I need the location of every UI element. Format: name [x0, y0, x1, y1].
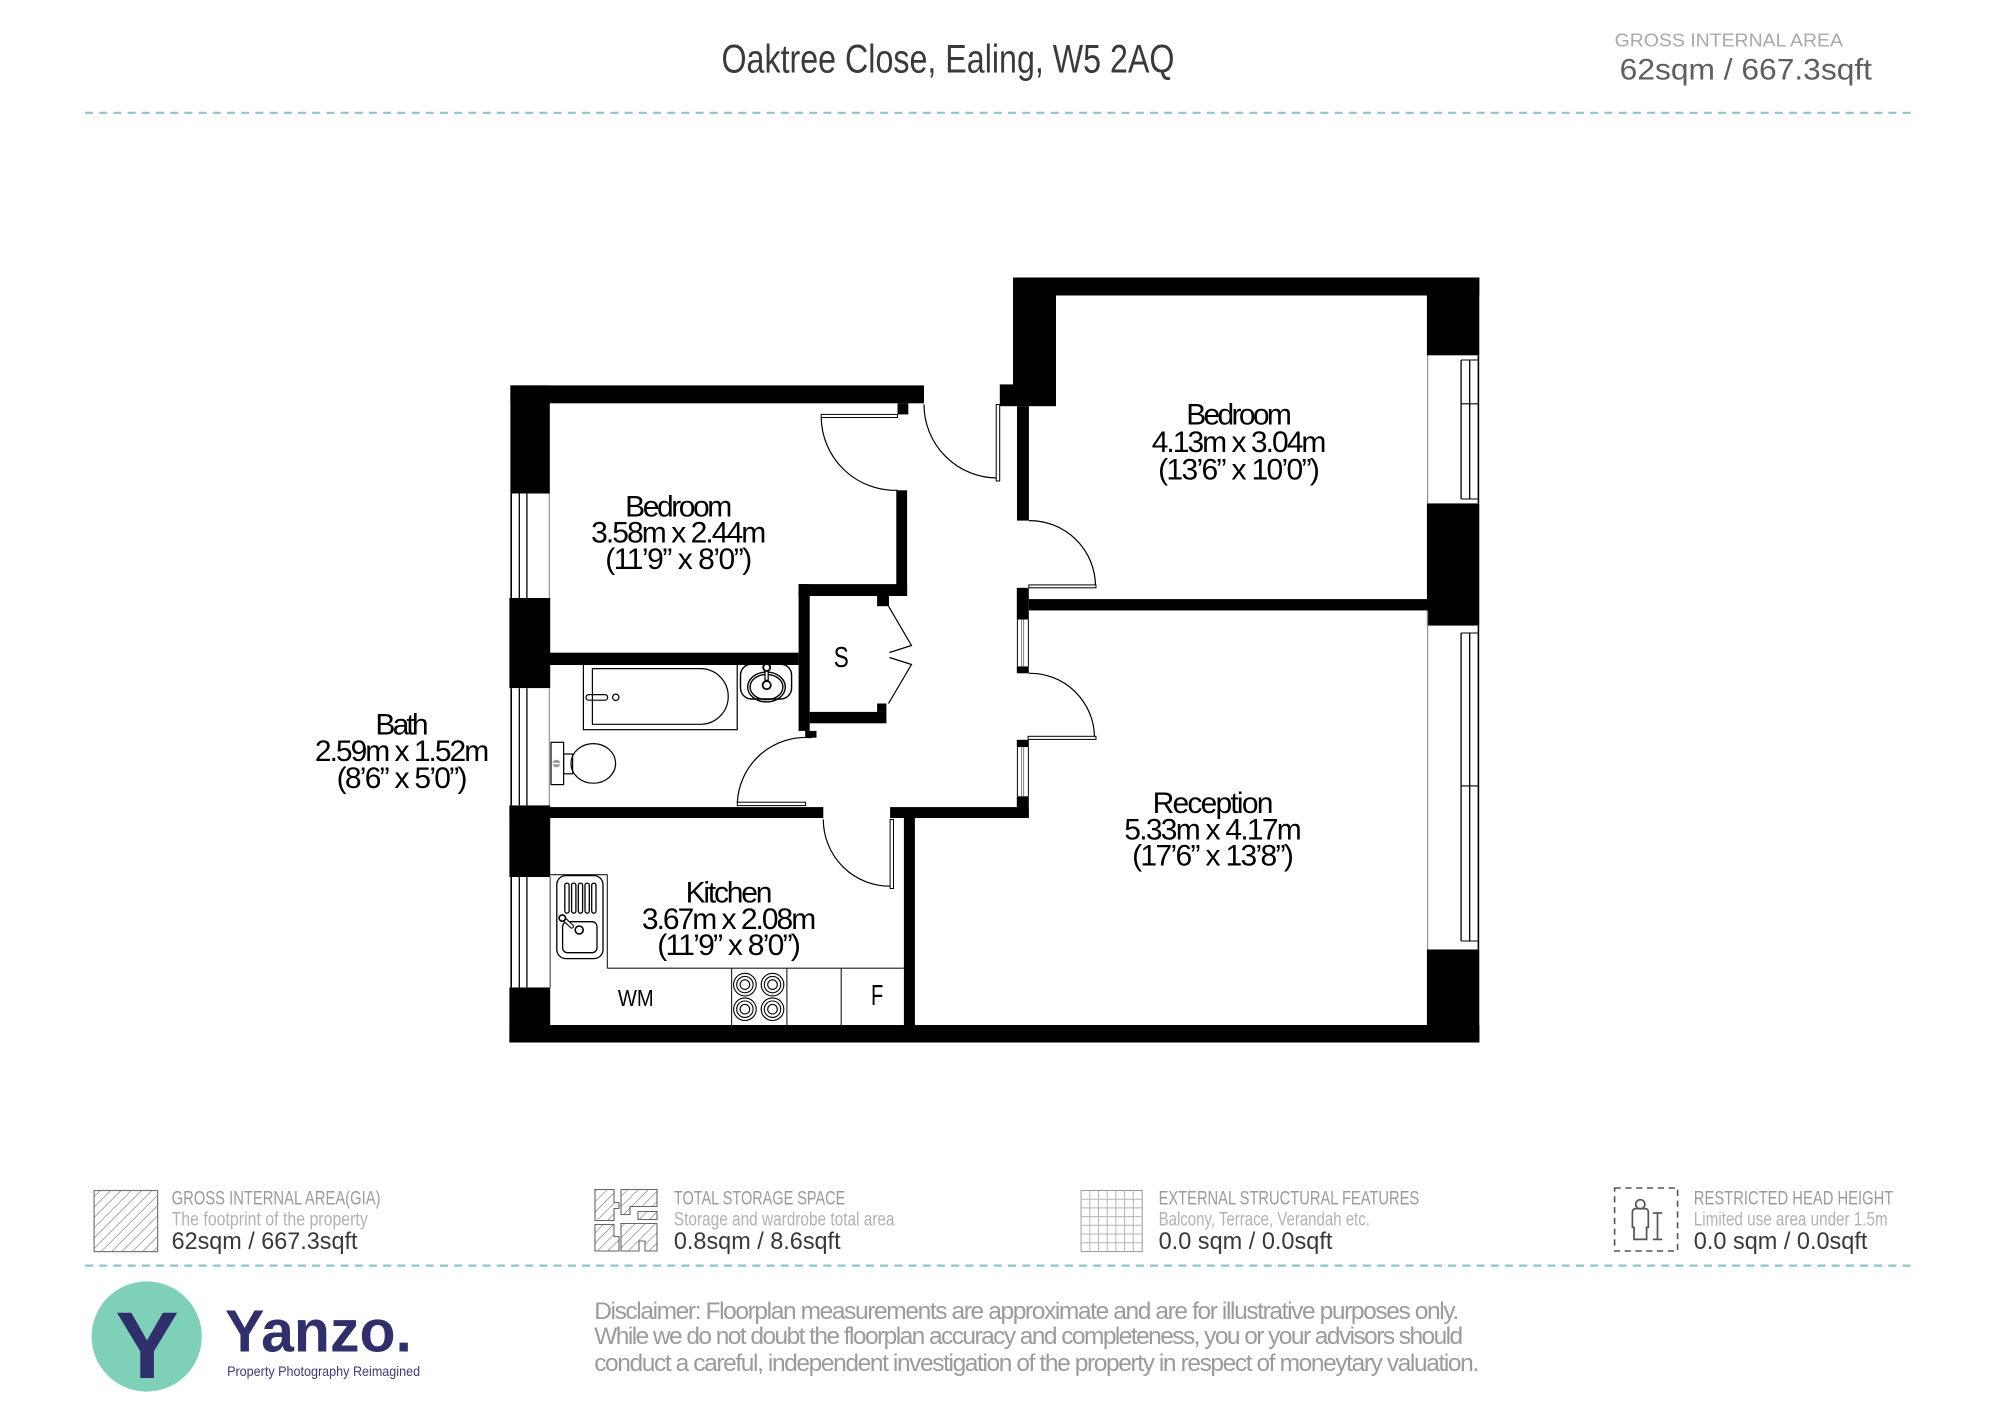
- svg-text:TOTAL STORAGE SPACE: TOTAL STORAGE SPACE: [674, 1188, 845, 1210]
- svg-text:Disclaimer: Floorplan measurem: Disclaimer: Floorplan measurements are a…: [594, 1298, 1459, 1325]
- svg-text:(17’6” x 13’8”): (17’6” x 13’8”): [1132, 840, 1294, 873]
- svg-text:S: S: [834, 642, 849, 674]
- svg-text:(11’9” x 8’0”): (11’9” x 8’0”): [657, 929, 801, 962]
- svg-text:RESTRICTED HEAD HEIGHT: RESTRICTED HEAD HEIGHT: [1694, 1188, 1894, 1210]
- svg-text:62sqm / 667.3sqft: 62sqm / 667.3sqft: [1620, 53, 1873, 86]
- svg-text:conduct a careful, independent: conduct a careful, independent investiga…: [594, 1350, 1479, 1377]
- svg-text:F: F: [871, 980, 883, 1012]
- svg-text:GROSS INTERNAL AREA: GROSS INTERNAL AREA: [1615, 30, 1844, 51]
- svg-text:(11’9” x 8’0”): (11’9” x 8’0”): [605, 543, 752, 576]
- svg-text:Oaktree Close, Ealing, W5 2AQ: Oaktree Close, Ealing, W5 2AQ: [722, 38, 1175, 82]
- svg-text:Y: Y: [115, 1293, 178, 1399]
- svg-text:Yanzo.: Yanzo.: [225, 1299, 412, 1365]
- svg-text:0.0 sqm / 0.0sqft: 0.0 sqm / 0.0sqft: [1159, 1228, 1333, 1255]
- svg-text:Property Photography Reimagine: Property Photography Reimagined: [227, 1364, 420, 1379]
- svg-text:While we do not doubt the floo: While we do not doubt the floorplan accu…: [594, 1323, 1463, 1350]
- svg-text:(13’6” x 10’0”): (13’6” x 10’0”): [1158, 454, 1320, 487]
- svg-text:WM: WM: [618, 985, 654, 1011]
- svg-text:0.0 sqm / 0.0sqft: 0.0 sqm / 0.0sqft: [1694, 1228, 1868, 1255]
- svg-text:(8’6” x 5’0”): (8’6” x 5’0”): [337, 762, 468, 795]
- svg-text:62sqm / 667.3sqft: 62sqm / 667.3sqft: [172, 1228, 358, 1255]
- svg-text:0.8sqm / 8.6sqft: 0.8sqm / 8.6sqft: [674, 1228, 841, 1255]
- svg-text:GROSS INTERNAL AREA(GIA): GROSS INTERNAL AREA(GIA): [172, 1188, 381, 1210]
- svg-text:EXTERNAL STRUCTURAL FEATURES: EXTERNAL STRUCTURAL FEATURES: [1159, 1188, 1420, 1210]
